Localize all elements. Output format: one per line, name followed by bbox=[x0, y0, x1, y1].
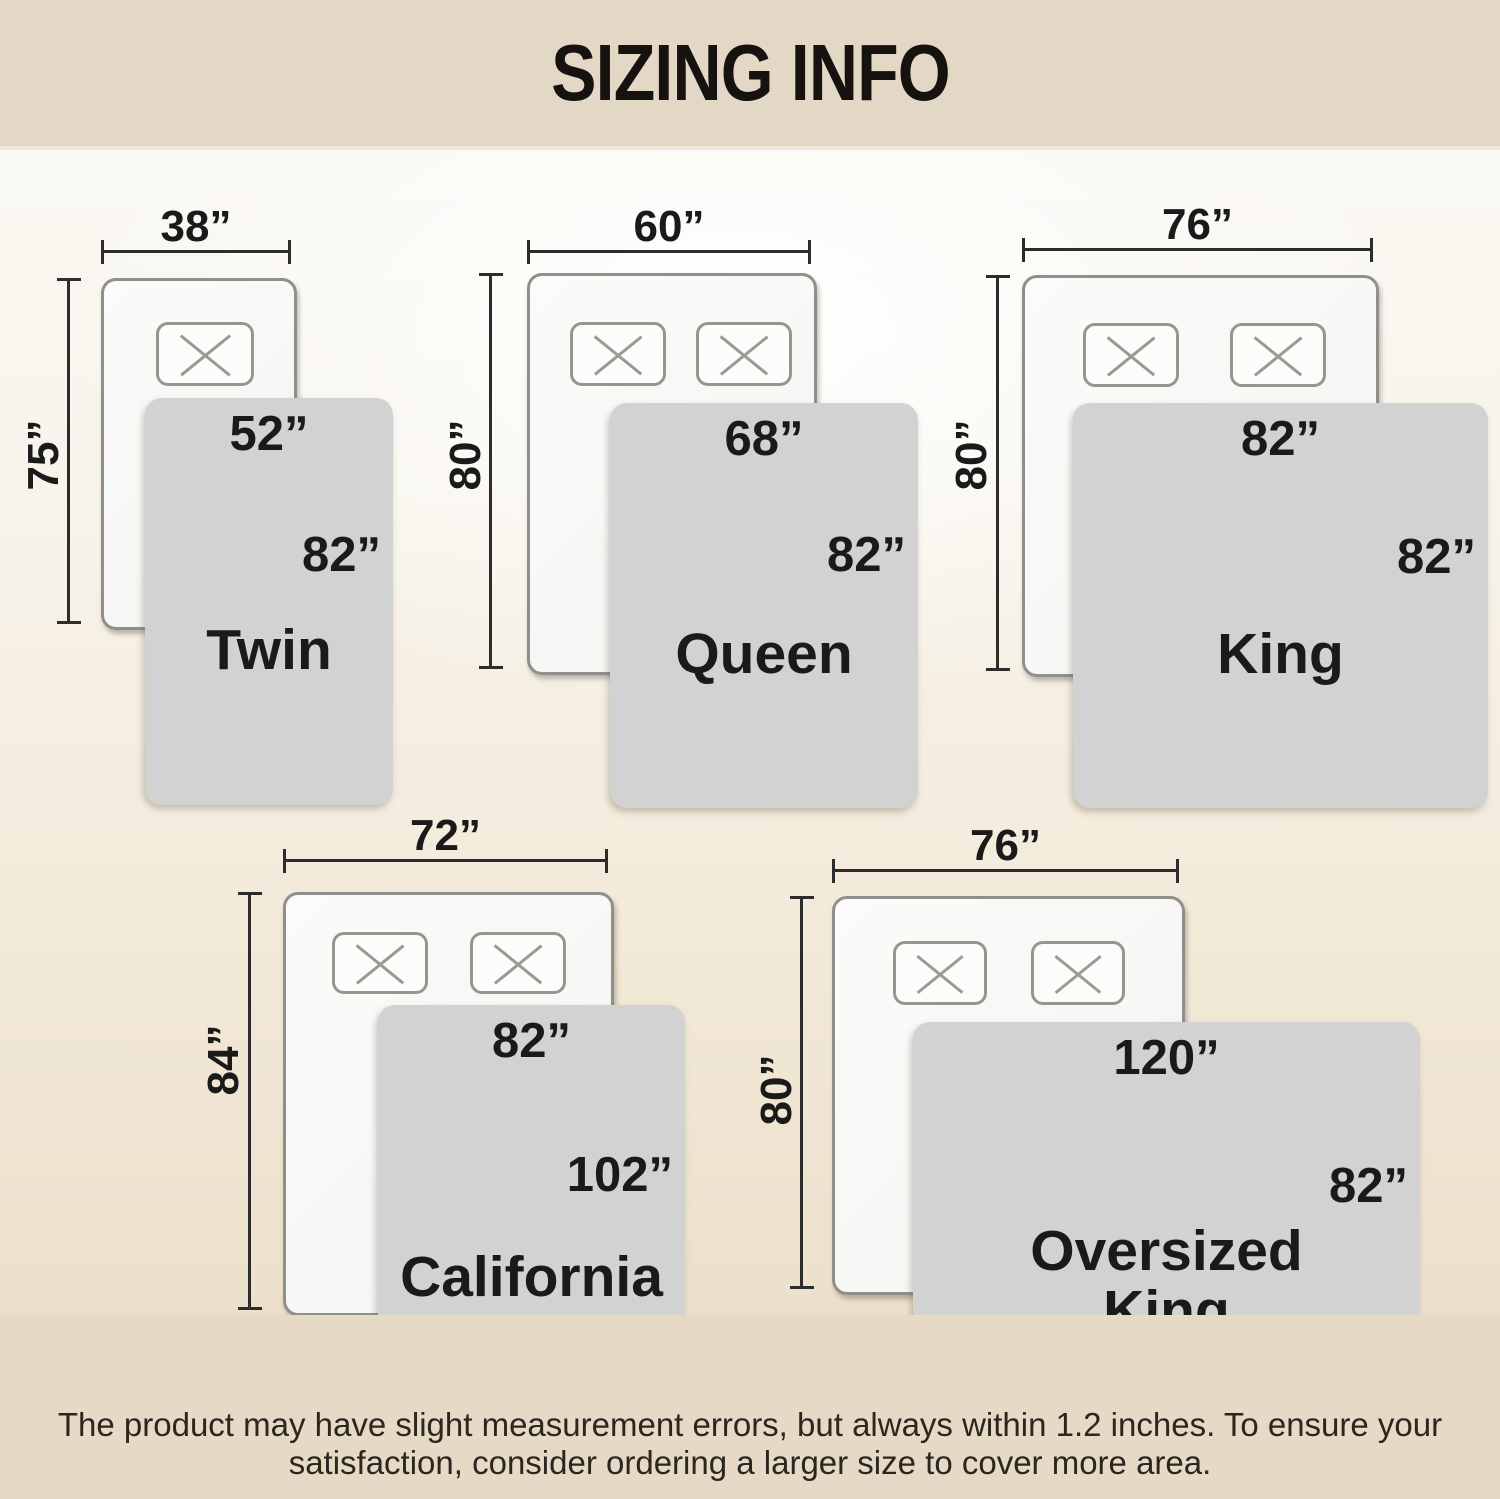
height-dimension-label: 80” bbox=[947, 420, 997, 491]
height-dimension-line bbox=[996, 275, 999, 671]
pillow-x-icon bbox=[1251, 333, 1305, 377]
diagram-twin: 38” 75” 52” 82” Twin bbox=[0, 0, 1500, 1499]
width-dimension-label: 38” bbox=[101, 202, 291, 252]
pillow-x-icon bbox=[1052, 951, 1104, 995]
diagram-california-king: 72” 84” 82” 102” California King bbox=[0, 0, 1500, 1499]
height-dimension-line bbox=[248, 892, 251, 1310]
width-dimension-label: 72” bbox=[283, 811, 608, 861]
diagram-queen: 60” 80” 68” 82” Queen bbox=[0, 0, 1500, 1499]
bed-outline bbox=[283, 892, 614, 1316]
pillow-icon bbox=[156, 322, 254, 386]
blanket-height-label: 102” bbox=[567, 1147, 673, 1203]
pillow-icon bbox=[1083, 323, 1179, 387]
bed-outline bbox=[101, 278, 297, 630]
diagram-oversized-king: 76” 80” 120” 82” Oversized King bbox=[0, 0, 1500, 1499]
pillow-icon bbox=[332, 932, 428, 994]
height-dimension-label: 80” bbox=[752, 1055, 802, 1126]
footer-note-line2: satisfaction, consider ordering a larger… bbox=[0, 1444, 1500, 1482]
size-name-line1: Twin bbox=[145, 620, 393, 680]
size-name-line1: King bbox=[1073, 624, 1488, 684]
height-dimension-label: 80” bbox=[441, 420, 491, 491]
size-name-line1: Queen bbox=[610, 624, 918, 684]
height-dimension-line bbox=[800, 896, 803, 1289]
blanket-width-label: 68” bbox=[610, 411, 918, 467]
blanket-height-label: 82” bbox=[302, 527, 381, 583]
blanket: 68” 82” Queen bbox=[610, 403, 918, 808]
height-dimension-line bbox=[67, 278, 70, 624]
blanket-height-label: 82” bbox=[827, 527, 906, 583]
size-name-label: King bbox=[1073, 624, 1488, 684]
blanket: 52” 82” Twin bbox=[145, 398, 393, 805]
sizing-info-infographic: SIZING INFO 38” 75” 52” 82” Twin 60” 80” bbox=[0, 0, 1500, 1499]
footer-note: The product may have slight measurement … bbox=[0, 1406, 1500, 1482]
blanket: 120” 82” Oversized King bbox=[913, 1022, 1420, 1357]
pillow-icon bbox=[1031, 941, 1125, 1005]
width-dimension-label: 76” bbox=[832, 821, 1179, 871]
blanket-height-label: 82” bbox=[1397, 529, 1476, 585]
size-name-line1: California bbox=[378, 1247, 685, 1307]
pillow-x-icon bbox=[491, 942, 545, 984]
height-dimension-label: 75” bbox=[19, 420, 69, 491]
width-dimension-line bbox=[527, 250, 811, 253]
pillow-x-icon bbox=[914, 951, 966, 995]
footer-note-line1: The product may have slight measurement … bbox=[0, 1406, 1500, 1444]
blanket: 82” 82” King bbox=[1073, 403, 1488, 808]
width-dimension-line bbox=[283, 859, 608, 862]
header-band: SIZING INFO bbox=[0, 0, 1500, 150]
page-title: SIZING INFO bbox=[551, 27, 950, 119]
width-dimension-label: 60” bbox=[527, 202, 811, 252]
pillow-icon bbox=[470, 932, 566, 994]
width-dimension-label: 76” bbox=[1022, 200, 1373, 250]
pillow-x-icon bbox=[177, 332, 233, 376]
bed-outline bbox=[527, 273, 817, 675]
pillow-icon bbox=[570, 322, 666, 386]
pillow-x-icon bbox=[717, 332, 771, 376]
pillow-x-icon bbox=[353, 942, 407, 984]
size-name-line1: Oversized bbox=[913, 1221, 1420, 1281]
blanket-width-label: 52” bbox=[145, 406, 393, 462]
size-name-label: Queen bbox=[610, 624, 918, 684]
blanket-height-label: 82” bbox=[1329, 1158, 1408, 1214]
blanket-width-label: 120” bbox=[913, 1030, 1420, 1086]
bed-outline bbox=[832, 896, 1185, 1295]
width-dimension-line bbox=[1022, 248, 1373, 251]
width-dimension-line bbox=[832, 869, 1179, 872]
pillow-icon bbox=[1230, 323, 1326, 387]
pillow-x-icon bbox=[1104, 333, 1158, 377]
blanket-width-label: 82” bbox=[378, 1013, 685, 1069]
pillow-icon bbox=[893, 941, 987, 1005]
height-dimension-line bbox=[489, 273, 492, 669]
pillow-x-icon bbox=[591, 332, 645, 376]
pillow-icon bbox=[696, 322, 792, 386]
width-dimension-line bbox=[101, 250, 291, 253]
diagram-king: 76” 80” 82” 82” King bbox=[0, 0, 1500, 1499]
height-dimension-label: 84” bbox=[199, 1025, 249, 1096]
blanket-width-label: 82” bbox=[1073, 411, 1488, 467]
bed-outline bbox=[1022, 275, 1379, 677]
size-name-label: Twin bbox=[145, 620, 393, 680]
